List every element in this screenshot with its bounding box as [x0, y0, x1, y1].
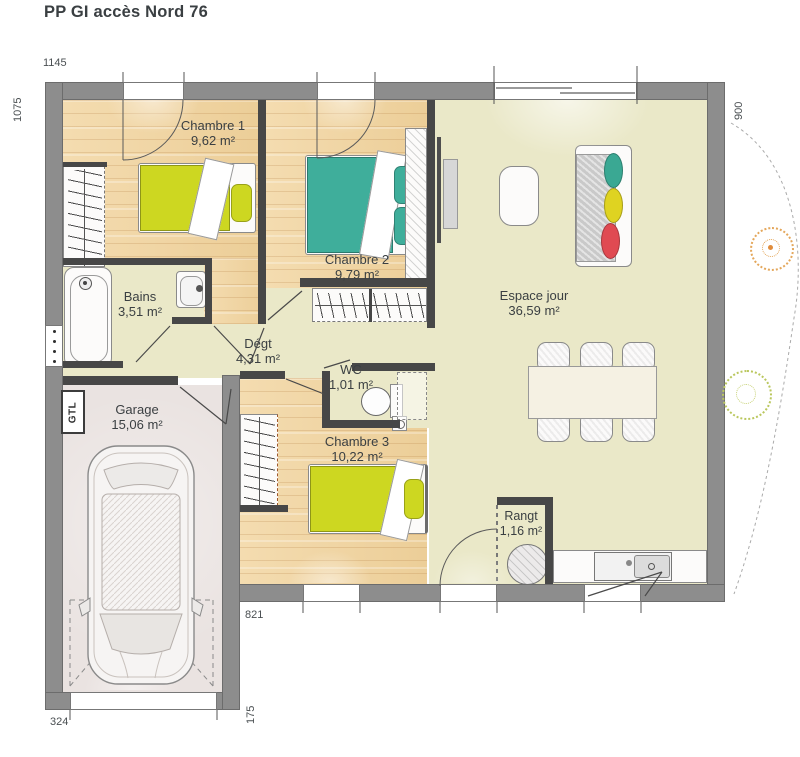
room-label-chambre2: Chambre 2 9,79 m² — [292, 252, 422, 282]
window-ch2 — [317, 82, 375, 100]
room-area: 9,62 m² — [148, 133, 278, 148]
wardrobe3 — [240, 414, 278, 506]
tv-screen — [437, 137, 441, 243]
wardrobe1 — [63, 166, 105, 267]
bed1-pillow — [231, 184, 252, 222]
wall-east — [707, 82, 725, 602]
vent-dot — [53, 330, 56, 333]
wardrobe3-rail — [259, 417, 260, 505]
partition-ch1-bains — [63, 258, 212, 265]
wc-dashed-zone — [397, 372, 427, 420]
room-area: 10,22 m² — [292, 449, 422, 464]
kitchen-sink-drain-icon — [648, 563, 655, 570]
room-name: Bains — [92, 289, 188, 304]
partition-bains-south — [63, 361, 123, 368]
garage-door — [70, 692, 217, 710]
wardrobe2-divider — [369, 289, 372, 322]
room-name: Chambre 3 — [292, 434, 422, 449]
armchair — [499, 166, 539, 226]
dim-garage-height: 175 — [245, 686, 257, 724]
room-area: 4,31 m² — [202, 351, 314, 366]
room-name: WC — [317, 362, 385, 377]
dim-left: 1075 — [12, 76, 24, 122]
bay-window — [494, 82, 637, 100]
partition-ch1-closet — [63, 162, 107, 167]
room-area: 9,79 m² — [292, 267, 422, 282]
vent-dot — [53, 340, 56, 343]
dining-table — [528, 366, 657, 419]
bedroom1-floor-patch — [204, 258, 266, 324]
room-label-wc: WC 1,01 m² — [317, 362, 385, 392]
garden-path — [731, 123, 798, 594]
room-name: Espace jour — [469, 288, 599, 303]
dim-top: 1145 — [43, 57, 67, 69]
room-area: 3,51 m² — [92, 304, 188, 319]
room-label-degt: Dégt 4,31 m² — [202, 336, 314, 366]
dim-garage-width: 324 — [50, 716, 68, 728]
partition-garage-north — [63, 376, 178, 385]
window-ch3 — [303, 584, 360, 602]
partition-wc-south — [322, 420, 400, 428]
room-area: 1,16 m² — [488, 524, 554, 539]
room-name: Chambre 1 — [148, 118, 278, 133]
dim-bottom: 821 — [245, 609, 263, 621]
sofa-cushion-red — [601, 223, 620, 259]
wardrobe1-rail — [84, 169, 85, 266]
kitchen-faucet-icon — [626, 560, 632, 566]
room-name: Dégt — [202, 336, 314, 351]
bathroom-sink-faucet-icon — [196, 285, 203, 292]
plant-icon-dot — [768, 245, 773, 250]
dim-right: 900 — [733, 76, 745, 120]
window-kitchen — [584, 584, 641, 602]
sofa-cushion-yellow — [604, 188, 623, 223]
partition-ch3-north — [240, 371, 285, 379]
room-label-rangt: Rangt 1,16 m² — [488, 509, 554, 539]
tv-stand — [443, 159, 458, 229]
bay-window-slider — [560, 92, 635, 94]
room-label-espace-jour: Espace jour 36,59 m² — [469, 288, 599, 318]
wardrobe1-rail-ticks — [68, 170, 102, 265]
room-name: Chambre 2 — [292, 252, 422, 267]
water-heater — [507, 544, 548, 585]
room-label-garage: Garage 15,06 m² — [72, 402, 202, 432]
sofa-cushion-teal — [604, 153, 623, 188]
wall-garage-east — [222, 375, 240, 710]
partition-bains-east — [205, 258, 212, 324]
bay-window-slider — [496, 87, 572, 89]
floor-plan: PP GI accès Nord 76 — [0, 0, 800, 757]
room-label-chambre1: Chambre 1 9,62 m² — [148, 118, 278, 148]
room-area: 1,01 m² — [317, 377, 385, 392]
partition-ch3-closet — [240, 505, 288, 512]
plan-title: PP GI accès Nord 76 — [44, 3, 208, 22]
wall-vent — [45, 325, 63, 367]
room-label-bains: Bains 3,51 m² — [92, 289, 188, 319]
entry-door — [440, 584, 497, 602]
vent-dot — [53, 350, 56, 353]
partition-ch2-living — [427, 100, 435, 328]
room-name: Rangt — [488, 509, 554, 524]
wardrobe2-south — [312, 288, 427, 322]
bathtub-drain-icon — [83, 281, 87, 285]
bed3-pillow — [404, 479, 424, 519]
room-area: 36,59 m² — [469, 303, 599, 318]
sofa — [575, 145, 632, 267]
window-ch1 — [123, 82, 184, 100]
plant-icon-core — [736, 384, 756, 404]
living-room-floor — [429, 100, 707, 584]
room-name: Garage — [72, 402, 202, 417]
room-label-chambre3: Chambre 3 10,22 m² — [292, 434, 422, 464]
room-area: 15,06 m² — [72, 417, 202, 432]
vent-dot — [53, 360, 56, 363]
